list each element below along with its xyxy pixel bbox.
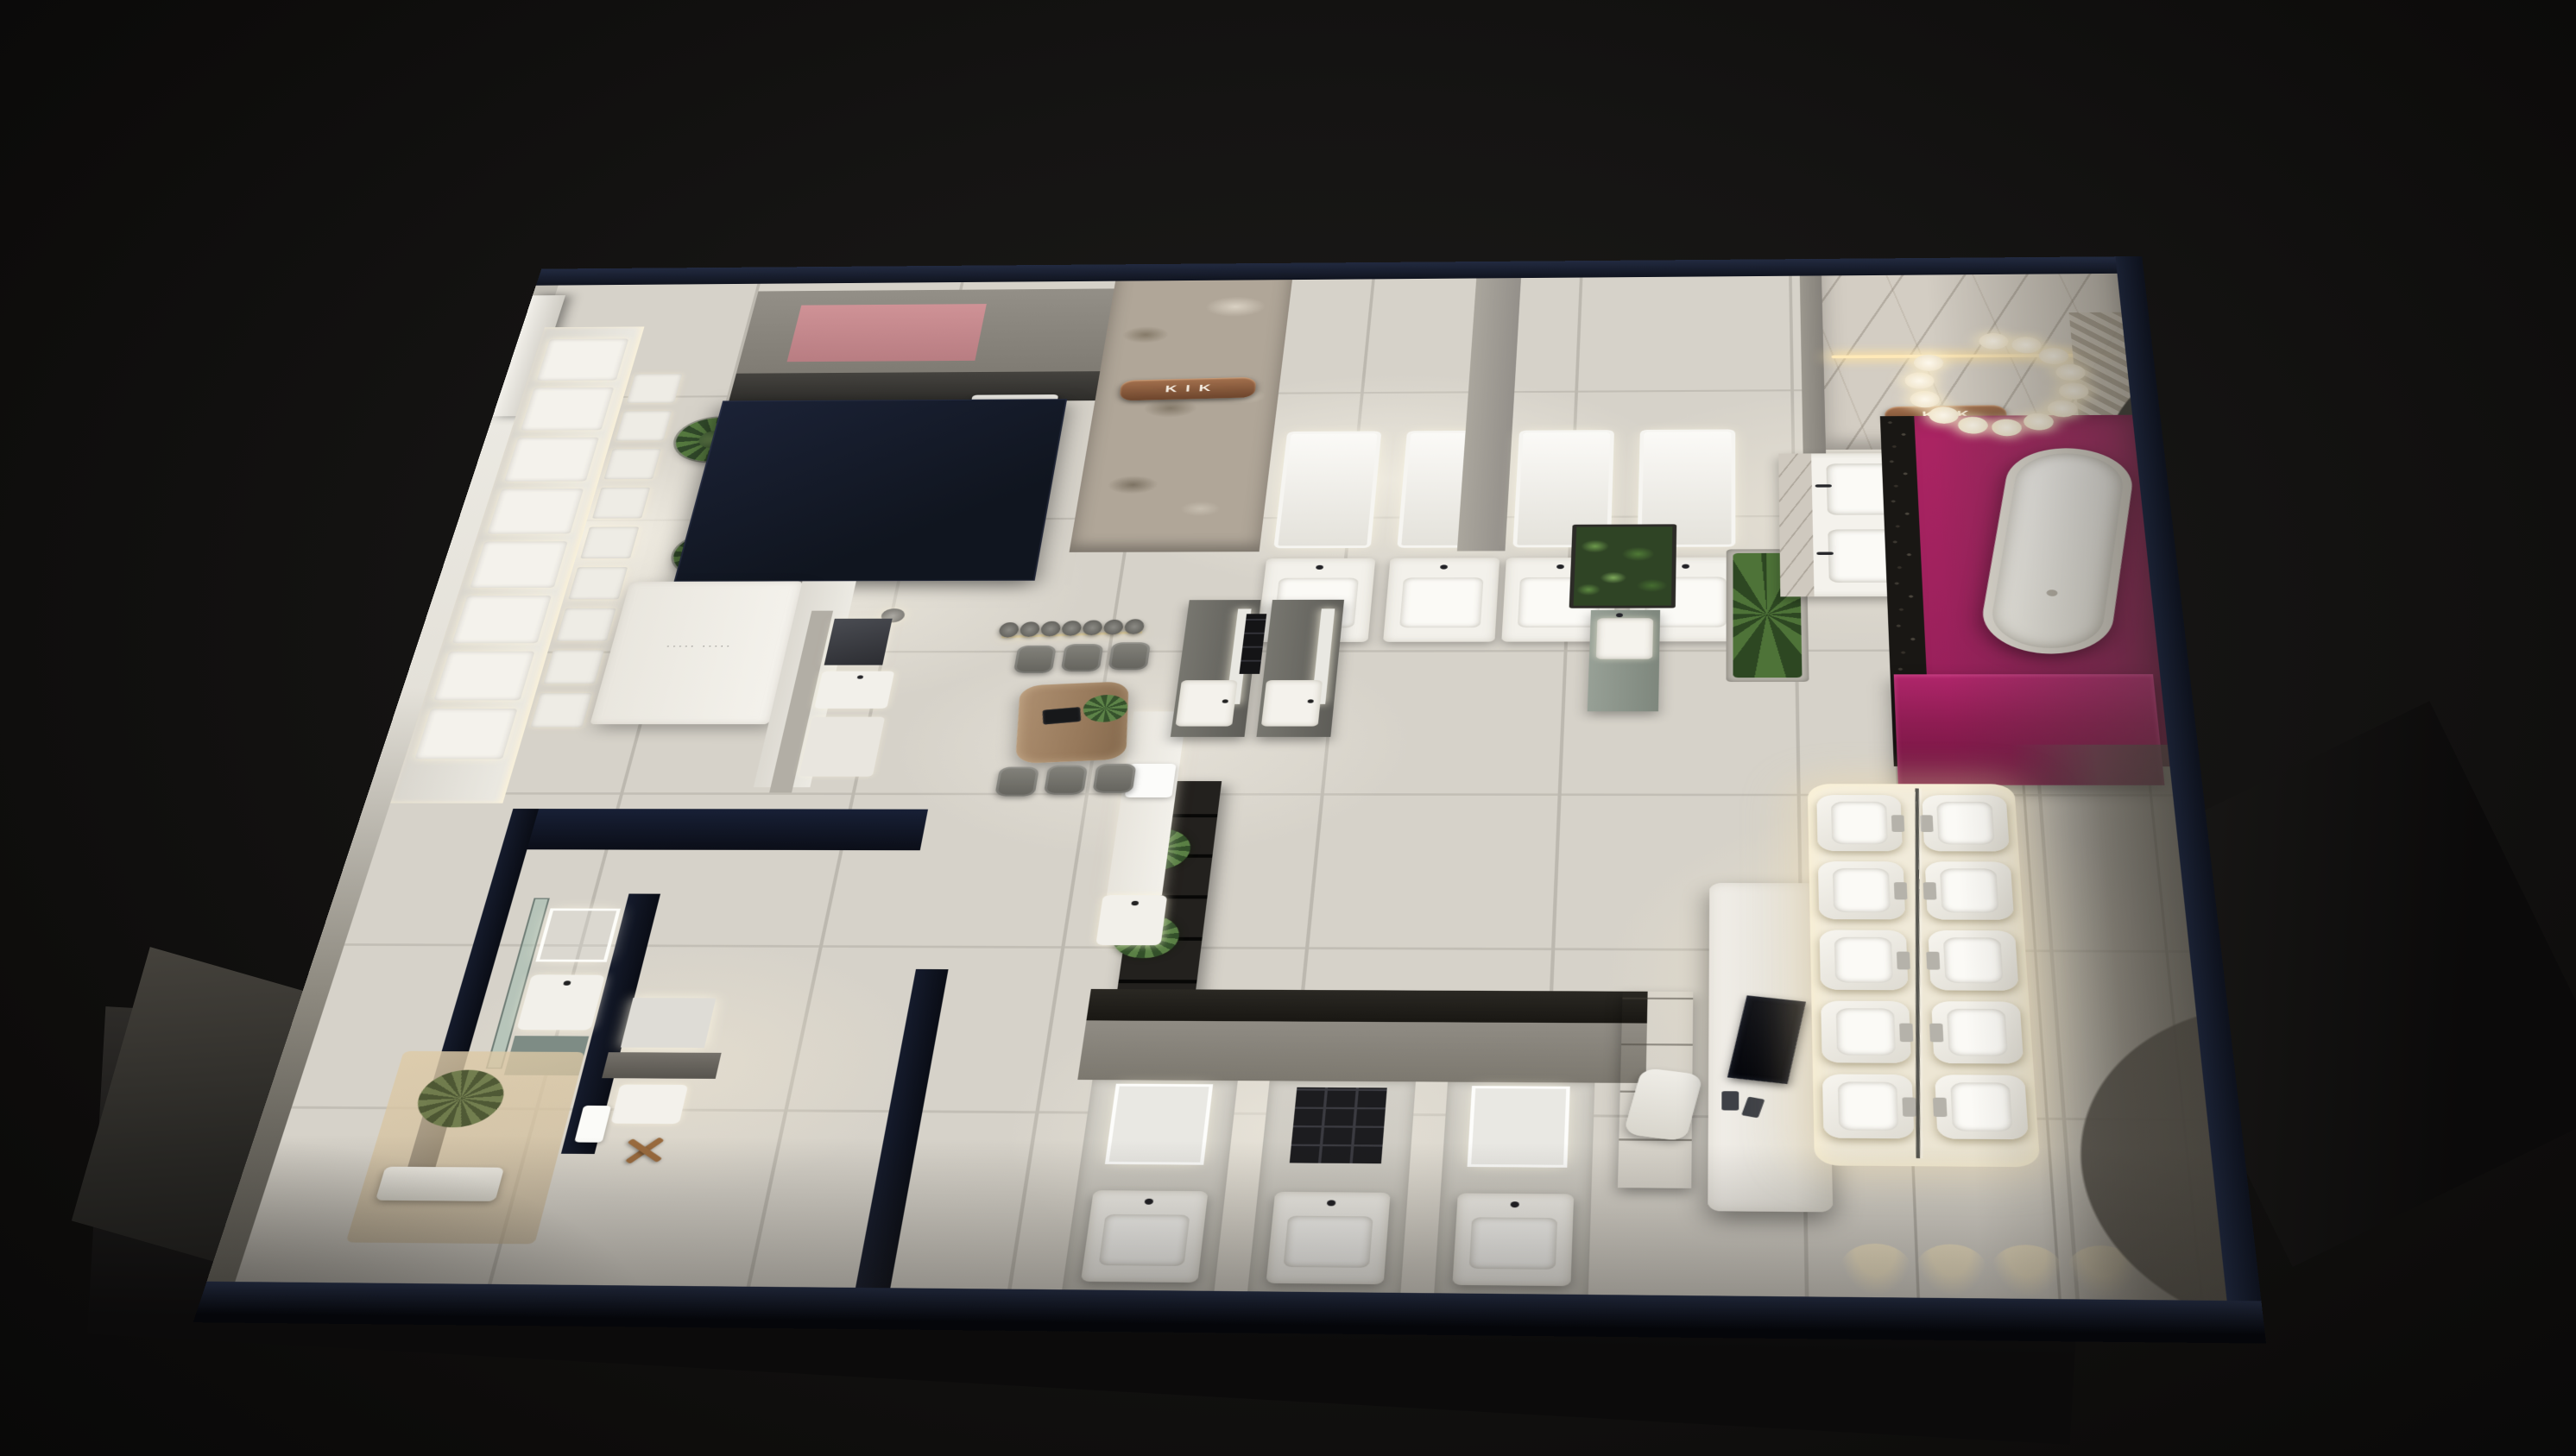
shower-panel [452,595,552,642]
bubble-ring-chandelier [1904,333,2092,435]
washbasin-unit [1452,1193,1574,1286]
washbasin-unit [1176,680,1238,726]
glass-bulb-icon [1909,351,1948,374]
gray-vanity-island [1256,599,1344,736]
washbasin-unit [1383,558,1500,642]
toilet-icon [1820,930,1909,990]
shower-panel [504,437,599,481]
vanity-mirror [824,618,893,665]
toilet-icon [1931,1001,2024,1063]
shower-panel [414,709,517,759]
toilet-icon [1816,795,1903,851]
table-tray [1043,707,1082,725]
faucet-icon [1816,552,1834,554]
glass-bulb-icon [2052,362,2090,382]
brand-sign-stone-wall: KIK [1119,376,1256,400]
glass-bulb-icon [1954,414,1992,436]
shower-panel [487,488,584,534]
display-wall [1077,1020,1647,1083]
valve-panel [603,448,661,478]
dining-chair [994,766,1039,796]
washbasin [1095,895,1167,945]
washbasin-unit [516,974,604,1030]
valve-panel [568,567,628,599]
remote-control-icon [1721,1091,1739,1110]
glass-bulb-icon [2057,381,2091,400]
shower-panel [433,651,534,700]
dining-chair [1044,765,1089,794]
toilet-icon [1818,860,1905,918]
toilet-icon [1925,861,2014,920]
toilet-icon [1822,1074,1915,1138]
toilet-icon [1922,795,2010,851]
glass-bulb-icon [1904,371,1935,389]
faucet-icon [1815,484,1832,487]
vanity-alcove [1247,1081,1416,1300]
display-wall-dark-cap [1086,988,1647,1023]
toilet-icon [1928,930,2018,990]
led-mirror [1278,433,1377,545]
valve-panel [543,650,604,684]
rose-accent-panel [787,304,987,362]
display-bench [376,1166,504,1201]
vanity-unit [799,716,885,776]
glass-bulb-icon [1990,418,2024,437]
shower-panel [536,338,628,381]
washbasin-unit [1081,1190,1209,1283]
toilet-icon [1935,1075,2029,1139]
mirror [1471,1088,1566,1165]
valve-panel [530,692,592,727]
shower-panel [521,387,614,430]
floor-plan: ····· ····· KIK [193,256,2266,1344]
vanity-sink [814,671,894,708]
living-green-wall [1569,524,1677,608]
glass-bulb-icon [1979,332,2010,349]
toilet-icon [1821,1000,1911,1062]
valve-panel [626,374,682,403]
mirror [621,998,716,1048]
desk-logo: ····· ····· [622,640,777,651]
mirror [1290,1087,1387,1163]
showroom-3d-render: ····· ····· KIK [0,0,2576,1456]
brand-sign-text: KIK [1119,376,1256,400]
washbasin-unit [1261,679,1323,726]
vanity-counter [602,1052,722,1079]
vanity-alcove [1434,1081,1595,1301]
valve-panel [592,487,650,518]
washbasin [610,1084,688,1124]
dining-chair [1061,644,1104,671]
washbasin-unit [1266,1191,1390,1283]
navy-partition-stub [501,808,928,849]
shower-panel [470,541,568,588]
led-mirror [540,911,616,960]
reception-navy-canopy [674,399,1068,582]
valve-panel [616,411,672,441]
valve-panel [580,526,639,558]
marble-backsplash [1778,453,1814,596]
valve-panel [556,608,616,640]
dining-chair [1092,763,1136,792]
dining-chair [1108,642,1151,670]
dining-chair [1013,645,1057,672]
sage-green-vanity [1588,609,1660,710]
mirror [1109,1086,1209,1162]
vanity-alcove [1061,1080,1238,1298]
